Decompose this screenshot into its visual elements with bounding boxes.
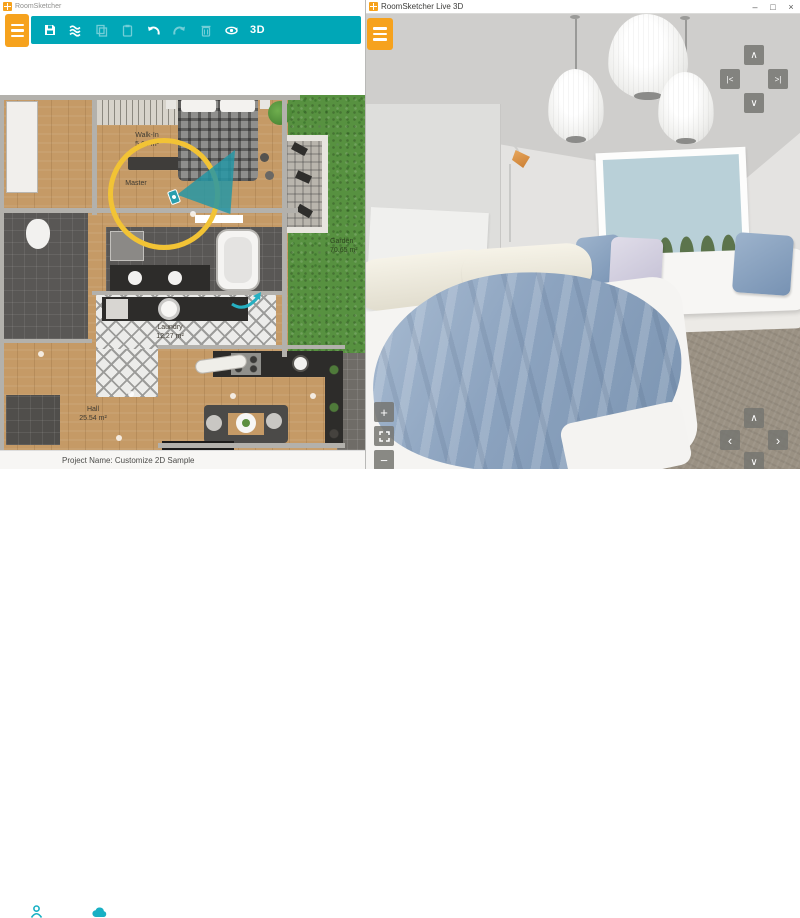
roomsketcher-logo-icon — [369, 2, 378, 11]
roomsketcher-2d-window: RoomSketcher — [0, 0, 365, 469]
rotate-left-button[interactable]: |< — [720, 69, 740, 89]
look-up-button[interactable]: ∧ — [744, 408, 764, 428]
rotate-right-button[interactable]: >| — [768, 69, 788, 89]
delete-icon[interactable] — [198, 23, 213, 38]
zoom-out-button[interactable]: − — [374, 450, 394, 469]
rotate-arrow-icon[interactable] — [228, 291, 264, 311]
lamp-canopy — [570, 15, 580, 19]
user-icon[interactable] — [30, 905, 43, 918]
rotate-view-icon[interactable] — [224, 23, 239, 38]
right-window-title: RoomSketcher Live 3D — [381, 2, 463, 11]
light-dot — [128, 391, 134, 397]
cloud-sync-icon[interactable] — [92, 907, 108, 918]
bathroom-vanity — [110, 265, 210, 291]
bed-pillow — [220, 99, 255, 112]
fullscreen-button[interactable] — [374, 426, 394, 446]
light-dot — [38, 351, 44, 357]
wall — [0, 339, 92, 343]
light-dot — [230, 393, 236, 399]
menu-icon[interactable] — [367, 18, 393, 50]
fullscreen-icon — [379, 431, 390, 442]
wall — [0, 95, 4, 450]
room-label-hall: Hall 25.54 m² — [53, 405, 133, 423]
undo-icon[interactable] — [146, 23, 161, 38]
pan-up-button[interactable]: ∧ — [744, 45, 764, 65]
3d-mode-button[interactable]: 3D — [250, 24, 265, 36]
pan-down-button[interactable]: ∨ — [744, 93, 764, 113]
statusbar: Project Name: Customize 2D Sample — [0, 450, 365, 469]
copy-icon[interactable] — [94, 23, 109, 38]
light-dot — [310, 393, 316, 399]
menu-icon[interactable] — [5, 14, 29, 47]
left-closet — [6, 101, 38, 193]
roomsketcher-logo-icon — [3, 2, 12, 11]
left-window-title: RoomSketcher — [15, 3, 61, 10]
bathtub-basin — [224, 237, 252, 283]
look-left-button[interactable]: ‹ — [720, 430, 740, 450]
stool — [206, 415, 222, 431]
maximize-button[interactable]: □ — [764, 0, 782, 13]
kitchen-side-counter — [325, 351, 343, 445]
storage-unit — [6, 395, 60, 445]
light-dot — [116, 435, 122, 441]
bed-pillow — [181, 99, 216, 112]
right-titlebar: RoomSketcher Live 3D – □ × — [366, 0, 800, 14]
wall — [282, 95, 287, 357]
toolbar-strip: 3D — [31, 16, 361, 44]
project-name: Project Name: Customize 2D Sample — [62, 456, 195, 465]
save-icon[interactable] — [42, 23, 57, 38]
kitchen-sink — [292, 355, 309, 372]
room-label-laundry: Laundry 12.27 m² — [125, 323, 215, 341]
laundry-floor-ext — [96, 349, 158, 397]
stool — [266, 413, 282, 429]
minimize-button[interactable]: – — [746, 0, 764, 13]
floorplan-canvas[interactable]: Walk-In 5.66 m² Master Garden 70.65 m² L… — [0, 95, 365, 450]
toolbar: 3D — [0, 13, 365, 49]
live3d-viewport[interactable]: ∧ |< >| ∨ + − ∧ ‹ › ∨ — [366, 14, 800, 469]
sink — [128, 271, 142, 285]
lamp-cord — [575, 19, 577, 71]
plant — [268, 101, 292, 125]
window-controls: – □ × — [746, 0, 800, 13]
redo-icon[interactable] — [172, 23, 187, 38]
left-titlebar: RoomSketcher — [0, 0, 365, 13]
decor-sphere — [265, 171, 274, 180]
sink — [168, 271, 182, 285]
decor-sphere — [260, 153, 269, 162]
paste-icon[interactable] — [120, 23, 135, 38]
wall — [92, 95, 97, 215]
sketch-mode-icon[interactable] — [68, 23, 83, 38]
close-button[interactable]: × — [782, 0, 800, 13]
zoom-in-button[interactable]: + — [374, 402, 394, 422]
toilet — [26, 219, 50, 249]
daybed-pillow-blue — [732, 232, 794, 296]
look-right-button[interactable]: › — [768, 430, 788, 450]
look-down-button[interactable]: ∨ — [744, 452, 764, 469]
bedside-lamp-shade — [512, 150, 530, 168]
laundry-appliance — [106, 299, 128, 319]
lamp-canopy — [680, 16, 690, 20]
wall — [0, 95, 300, 100]
washer — [158, 298, 180, 320]
roomsketcher-live3d-window: RoomSketcher Live 3D – □ × — [365, 0, 800, 469]
bowl-fruit — [242, 419, 250, 427]
wall — [158, 345, 345, 349]
room-label-garden: Garden 70.65 m² — [330, 237, 365, 255]
wall — [158, 443, 345, 448]
bedside-lamp-stem — [509, 164, 511, 242]
